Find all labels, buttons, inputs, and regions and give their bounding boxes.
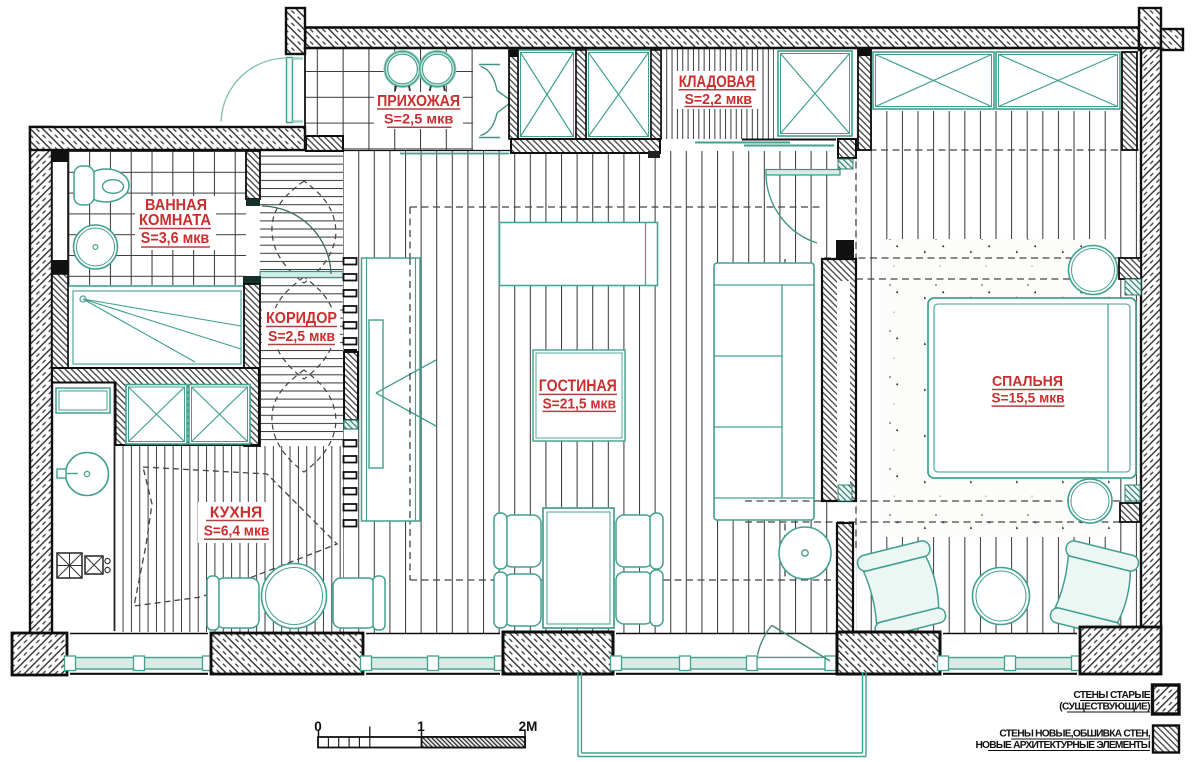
svg-text:КУХНЯ: КУХНЯ xyxy=(210,505,263,522)
svg-text:(СУЩЕСТВУЮЩИЕ): (СУЩЕСТВУЮЩИЕ) xyxy=(1059,702,1150,713)
svg-text:S=2,5 мкв: S=2,5 мкв xyxy=(268,328,335,345)
svg-text:СПАЛЬНЯ: СПАЛЬНЯ xyxy=(992,374,1063,390)
svg-text:КОРИДОР: КОРИДОР xyxy=(266,310,337,327)
svg-text:S=21,5 мкв: S=21,5 мкв xyxy=(542,395,616,412)
svg-text:S=2,5 мкв: S=2,5 мкв xyxy=(384,111,454,127)
svg-text:НОВЫЕ АРХИТЕКТУРНЫЕ ЭЛЕМЕНТЫ: НОВЫЕ АРХИТЕКТУРНЫЕ ЭЛЕМЕНТЫ xyxy=(975,740,1150,751)
svg-text:S=3,6 мкв: S=3,6 мкв xyxy=(141,230,210,247)
svg-text:СТЕНЫ СТАРЫЕ: СТЕНЫ СТАРЫЕ xyxy=(1073,690,1150,701)
svg-text:ПРИХОЖАЯ: ПРИХОЖАЯ xyxy=(377,93,460,110)
svg-text:ГОСТИНАЯ: ГОСТИНАЯ xyxy=(539,376,617,395)
svg-text:S=2,2 мкв: S=2,2 мкв xyxy=(684,91,752,108)
svg-text:S=15,5 мкв: S=15,5 мкв xyxy=(992,391,1065,406)
svg-text:КЛАДОВАЯ: КЛАДОВАЯ xyxy=(679,73,756,91)
svg-text:СТЕНЫ НОВЫЕ,ОБШИВКА СТЕН,: СТЕНЫ НОВЫЕ,ОБШИВКА СТЕН, xyxy=(999,729,1151,740)
svg-text:2М: 2М xyxy=(519,719,538,734)
svg-text:S=6,4 мкв: S=6,4 мкв xyxy=(204,523,270,540)
svg-text:КОМНАТА: КОМНАТА xyxy=(139,212,211,229)
